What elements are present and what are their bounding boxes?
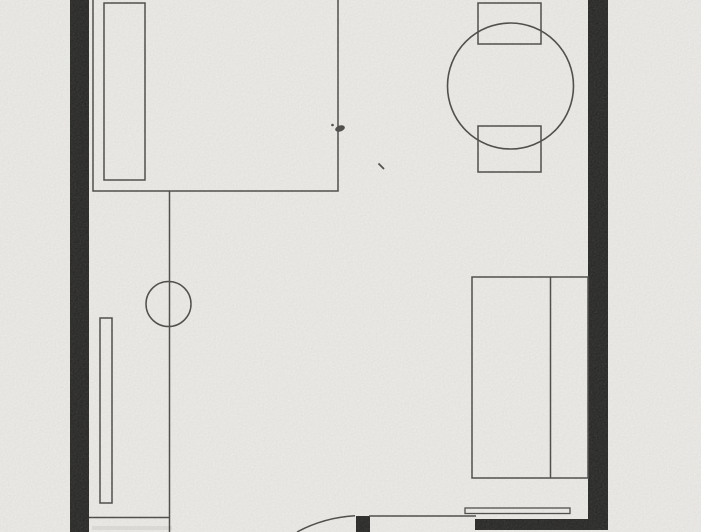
wall-left — [70, 0, 89, 532]
wall-right — [588, 0, 608, 530]
scan-smudge — [92, 526, 172, 530]
door-jamb — [356, 516, 370, 532]
scanned-floorplan-page — [0, 0, 701, 532]
floorplan-drawing — [0, 0, 701, 532]
wall-bottom-right — [475, 519, 592, 530]
ink-mark-dot — [331, 124, 334, 127]
